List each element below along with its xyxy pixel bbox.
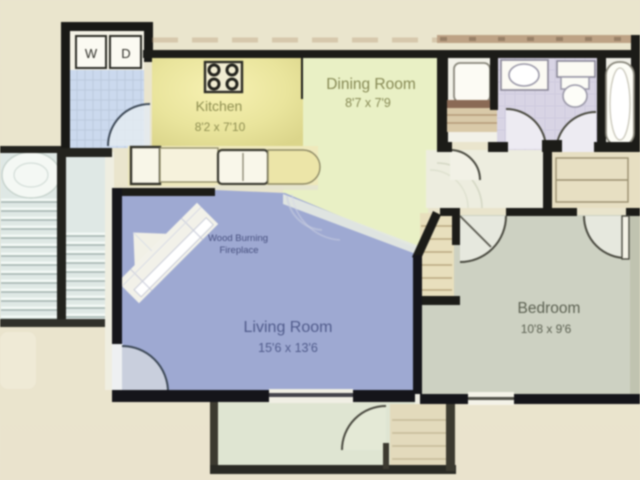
svg-text:W: W <box>85 46 98 61</box>
svg-text:Living Room: Living Room <box>244 319 333 336</box>
svg-text:Fireplace: Fireplace <box>219 245 258 256</box>
svg-text:Kitchen: Kitchen <box>196 98 243 114</box>
svg-text:8'2 x 7'10: 8'2 x 7'10 <box>195 120 246 134</box>
svg-text:Bedroom: Bedroom <box>518 300 581 317</box>
svg-text:Wood Burning: Wood Burning <box>208 233 268 244</box>
svg-text:8'7 x 7'9: 8'7 x 7'9 <box>345 96 391 110</box>
svg-text:15'6 x 13'6: 15'6 x 13'6 <box>258 341 318 355</box>
svg-text:Dining Room: Dining Room <box>326 76 416 93</box>
svg-text:10'8 x 9'6: 10'8 x 9'6 <box>521 322 572 336</box>
svg-text:D: D <box>121 46 130 61</box>
